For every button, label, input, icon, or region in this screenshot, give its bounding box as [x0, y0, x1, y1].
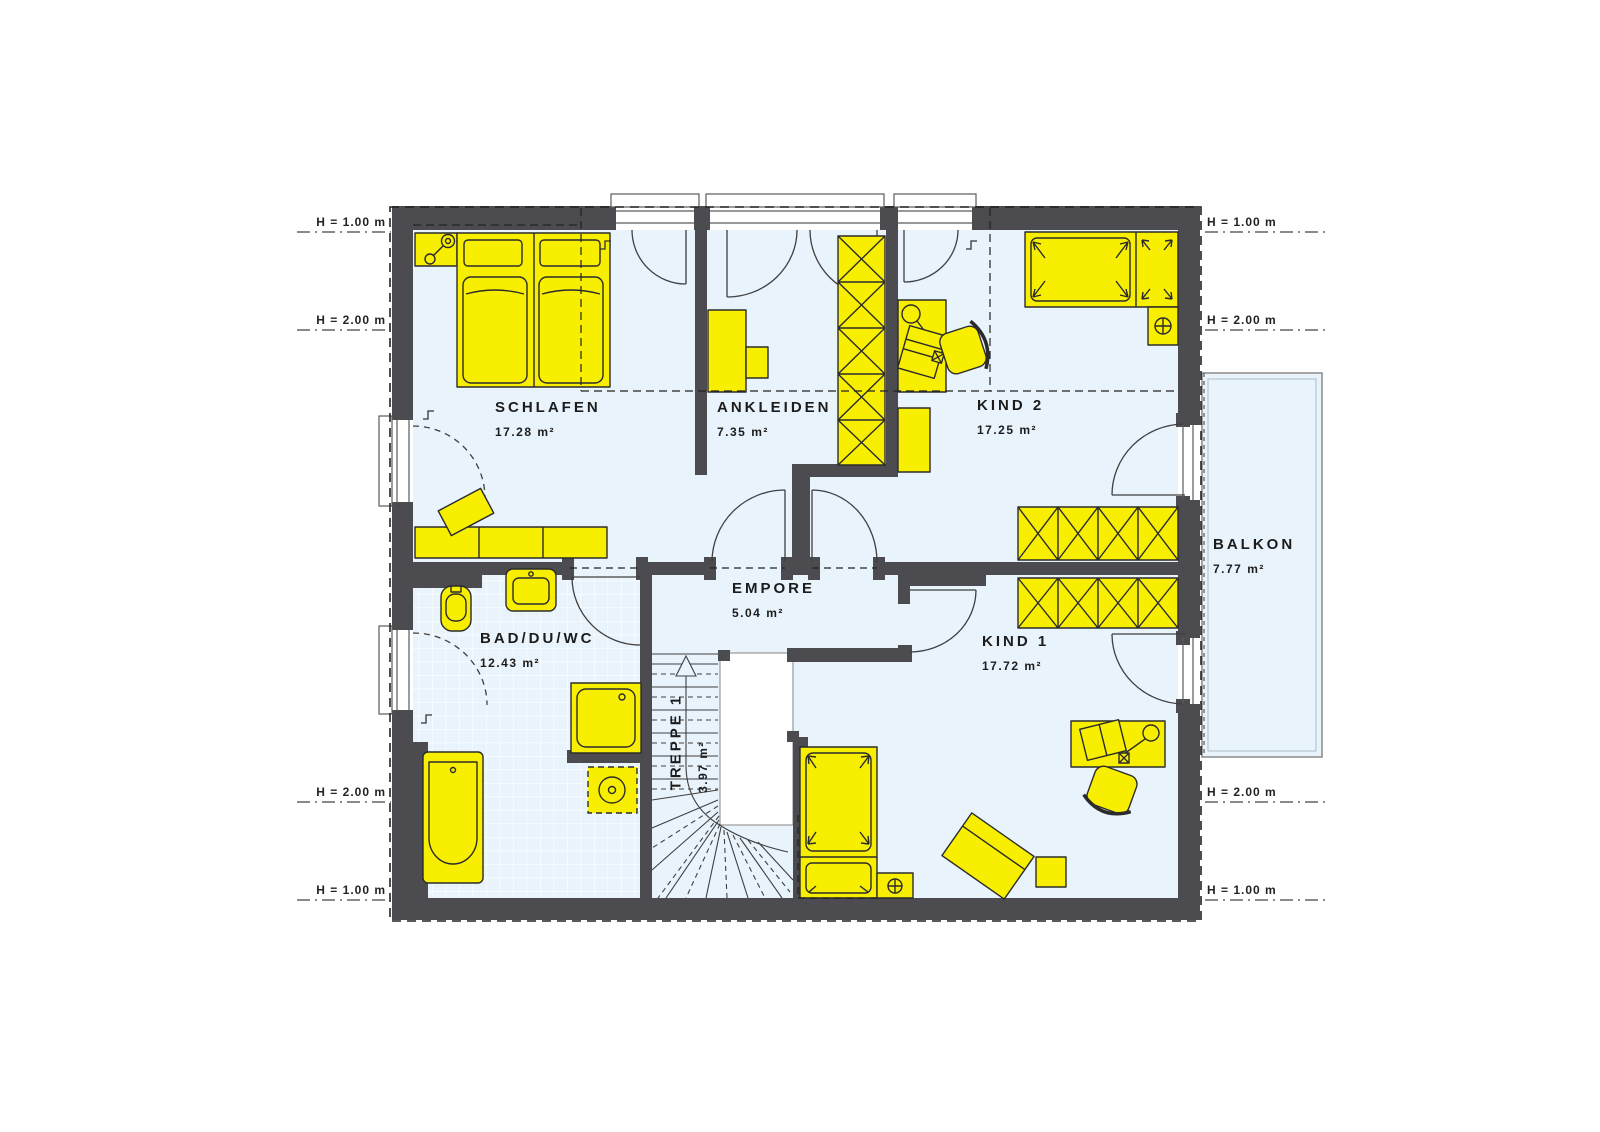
- height-marker-label: H = 2.00 m: [1207, 785, 1277, 799]
- nightstand-icon: [415, 233, 457, 266]
- sink-icon: [506, 569, 556, 611]
- desk-icon-kind2: [898, 300, 947, 392]
- toilet-icon: [441, 586, 471, 631]
- height-marker-label: H = 1.00 m: [1207, 215, 1277, 229]
- bathtub-icon: [423, 752, 483, 883]
- height-marker-label: H = 2.00 m: [1207, 313, 1277, 327]
- height-marker-label: H = 2.00 m: [296, 785, 386, 799]
- nightstand-icon-kind2: [1148, 307, 1178, 345]
- shower-icon: [571, 683, 641, 753]
- washing-machine-icon: [588, 767, 637, 813]
- nightstand-icon-kind1: [877, 873, 913, 898]
- container-icon-kind2: [898, 408, 930, 472]
- box-icon-kind1: [1036, 857, 1066, 887]
- height-marker-label: H = 1.00 m: [1207, 883, 1277, 897]
- desk-icon-kind1: [1071, 720, 1165, 767]
- balcony: [1202, 373, 1322, 757]
- bed-icon-kind2: [1025, 232, 1178, 307]
- height-marker-label: H = 1.00 m: [296, 883, 386, 897]
- wardrobe-icon-ankleiden: [838, 236, 885, 465]
- floor-plan-drawing: [0, 0, 1600, 1132]
- double-bed-icon: [457, 233, 610, 387]
- bed-icon-kind1: [800, 747, 877, 898]
- wardrobe-icon-kind2: [1018, 507, 1178, 560]
- height-marker-label: H = 2.00 m: [296, 313, 386, 327]
- wardrobe-icon-kind1: [1018, 578, 1178, 628]
- height-marker-label: H = 1.00 m: [296, 215, 386, 229]
- stair-void: [720, 653, 793, 825]
- floor-plan: SCHLAFEN 17.28 m² ANKLEIDEN 7.35 m² KIND…: [0, 0, 1600, 1132]
